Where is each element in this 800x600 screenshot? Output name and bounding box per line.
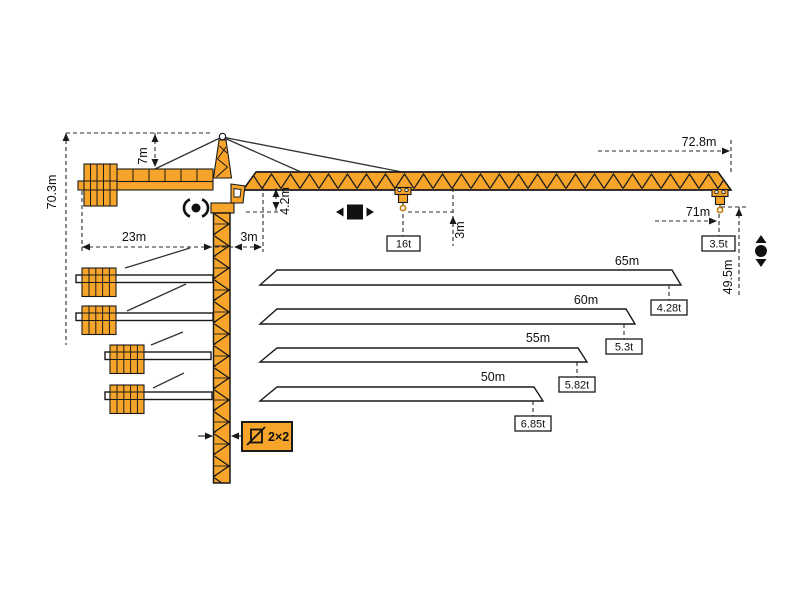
trolley-tip	[712, 190, 728, 213]
dim-hook-height: 49.5m	[721, 260, 735, 295]
capacity-value: 5.3t	[615, 342, 633, 354]
hook-mid	[400, 203, 405, 211]
jib-variant-50m: 50m 6.85t	[260, 370, 551, 431]
slewing-icon	[184, 200, 208, 217]
jib	[243, 172, 731, 190]
dim-jib-root-height: 4.2m	[278, 187, 292, 215]
counterweight-variant	[76, 248, 213, 297]
tip-capacity-value: 3.5t	[709, 239, 727, 251]
dim-total-height: 70.3m	[45, 175, 59, 210]
jib-variant-length: 65m	[615, 254, 639, 268]
hoist-up-down-icon	[755, 235, 767, 267]
dim-counter-jib-radius: 23m	[122, 230, 146, 244]
jib-variant-55m: 55m 5.82t	[260, 331, 595, 392]
capacity-value: 5.82t	[565, 380, 589, 392]
capacity-value: 6.85t	[521, 419, 545, 431]
dim-apex-height: 7m	[136, 147, 150, 164]
crane-structure	[78, 133, 731, 483]
max-capacity-value: 16t	[396, 239, 411, 251]
counterweight-block	[84, 164, 117, 206]
slewing-collar	[211, 203, 234, 213]
hook-tip	[717, 205, 722, 213]
counterweight-variant	[105, 373, 212, 414]
capacity-value: 4.28t	[657, 303, 681, 315]
dim-max-hook-radius: 71m	[686, 205, 710, 219]
trolley-mid	[395, 188, 411, 211]
counterweight-variants	[76, 248, 213, 414]
dim-min-hook-radius: 3m	[240, 230, 257, 244]
dim-max-jib-length: 72.8m	[682, 135, 717, 149]
counterweight-variant	[105, 332, 211, 374]
mast-section-callout: 2×2	[198, 422, 292, 451]
counter-jib	[78, 164, 213, 206]
mast-section-value: 2×2	[268, 430, 289, 444]
dim-hook-to-jib: 3m	[453, 221, 467, 238]
jib-variants: 65m 4.28t 60m 5.3t 55m 5.82t 50m 6.85t	[260, 254, 687, 431]
jib-variant-60m: 60m 5.3t	[260, 293, 642, 354]
operator-cab	[231, 184, 245, 203]
jib-variant-length: 55m	[526, 331, 550, 345]
jib-variant-65m: 65m 4.28t	[260, 254, 687, 315]
apex-pulley	[219, 133, 225, 139]
jib-variant-length: 60m	[574, 293, 598, 307]
crane-dimension-diagram: 70.3m 7m 23m 3m 4.2m 3m	[0, 0, 800, 600]
trolley-travel-icon	[336, 205, 374, 220]
mast	[214, 213, 231, 483]
jib-variant-length: 50m	[481, 370, 505, 384]
